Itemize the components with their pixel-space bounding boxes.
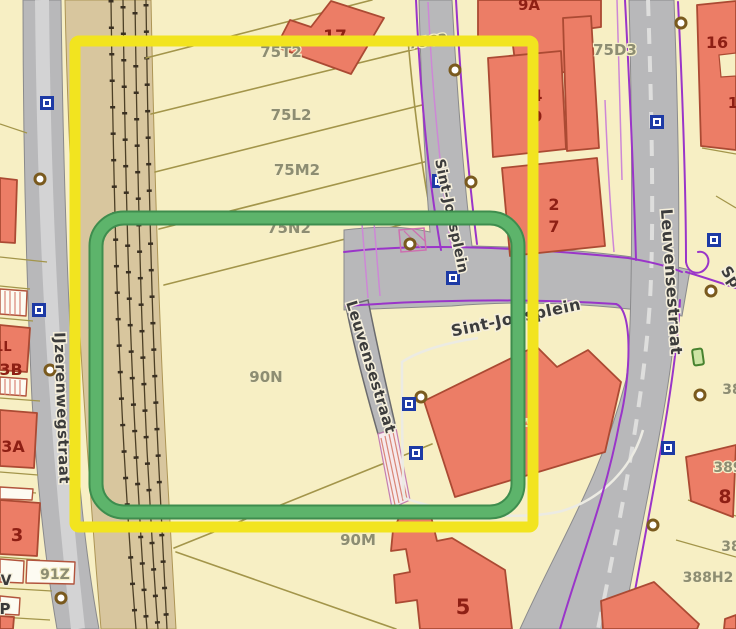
house-number-3A: 3A [1,437,25,456]
utility-point-marker [661,441,675,455]
house-number-3B: 3B [0,360,23,379]
house-number-2: 2 [548,195,559,214]
utility-point-marker [409,446,423,460]
parcel-label-91Z: 91Z [40,567,70,583]
boundary-point-marker [416,392,426,402]
utility-point-marker [40,96,54,110]
boundary-point-marker [405,239,415,249]
house-number-5: 5 [456,595,471,619]
small-building-row [0,487,33,500]
map-canvas: 75T2 75L2 75M2 75N2 75C3 75D3 90N 90M 91… [0,0,736,629]
boundary-point-marker [648,520,658,530]
house-number-3: 3 [11,525,24,546]
parcel-label-75M2: 75M2 [274,161,320,179]
small-green-marker [692,348,704,365]
boundary-point-marker [466,177,476,187]
cadastral-map: 75T2 75L2 75M2 75N2 75C3 75D3 90N 90M 91… [0,0,736,629]
boundary-point-marker [706,286,716,296]
parcel-label-90M: 90M [340,531,376,549]
boundary-point-marker [695,390,705,400]
house-number-7: 7 [548,217,559,236]
terraced-row-1 [0,289,27,316]
boundary-point-marker [35,174,45,184]
utility-point-marker [650,115,664,129]
house-number-V: V [1,573,12,589]
boundary-point-marker [450,65,460,75]
parcel-label-90N: 90N [249,368,282,386]
utility-point-marker [707,233,721,247]
parcel-label-38a: 38 [722,382,736,398]
house-number-1L: 1L [0,340,12,355]
house-number-9A: 9A [518,0,540,14]
parcel-label-75D3: 75D3 [593,41,637,59]
house-number-16: 16 [706,33,728,52]
utility-point-marker [32,303,46,317]
boundary-point-marker [56,593,66,603]
building-left-mid [0,178,17,243]
building-4-9 [488,51,566,157]
parcel-label-75L2: 75L2 [271,106,312,124]
utility-point-marker [402,397,416,411]
house-number-P: P [0,600,11,618]
house-number-8: 8 [718,486,731,508]
house-number-1: 1 [728,94,736,112]
parcel-label-389: 389 [713,460,736,476]
parcel-label-388H2: 388H2 [683,570,734,586]
building-16-notch [719,53,736,77]
boundary-point-marker [676,18,686,28]
terraced-row-2 [0,377,27,396]
parcel-label-38b: 38 [721,539,736,555]
